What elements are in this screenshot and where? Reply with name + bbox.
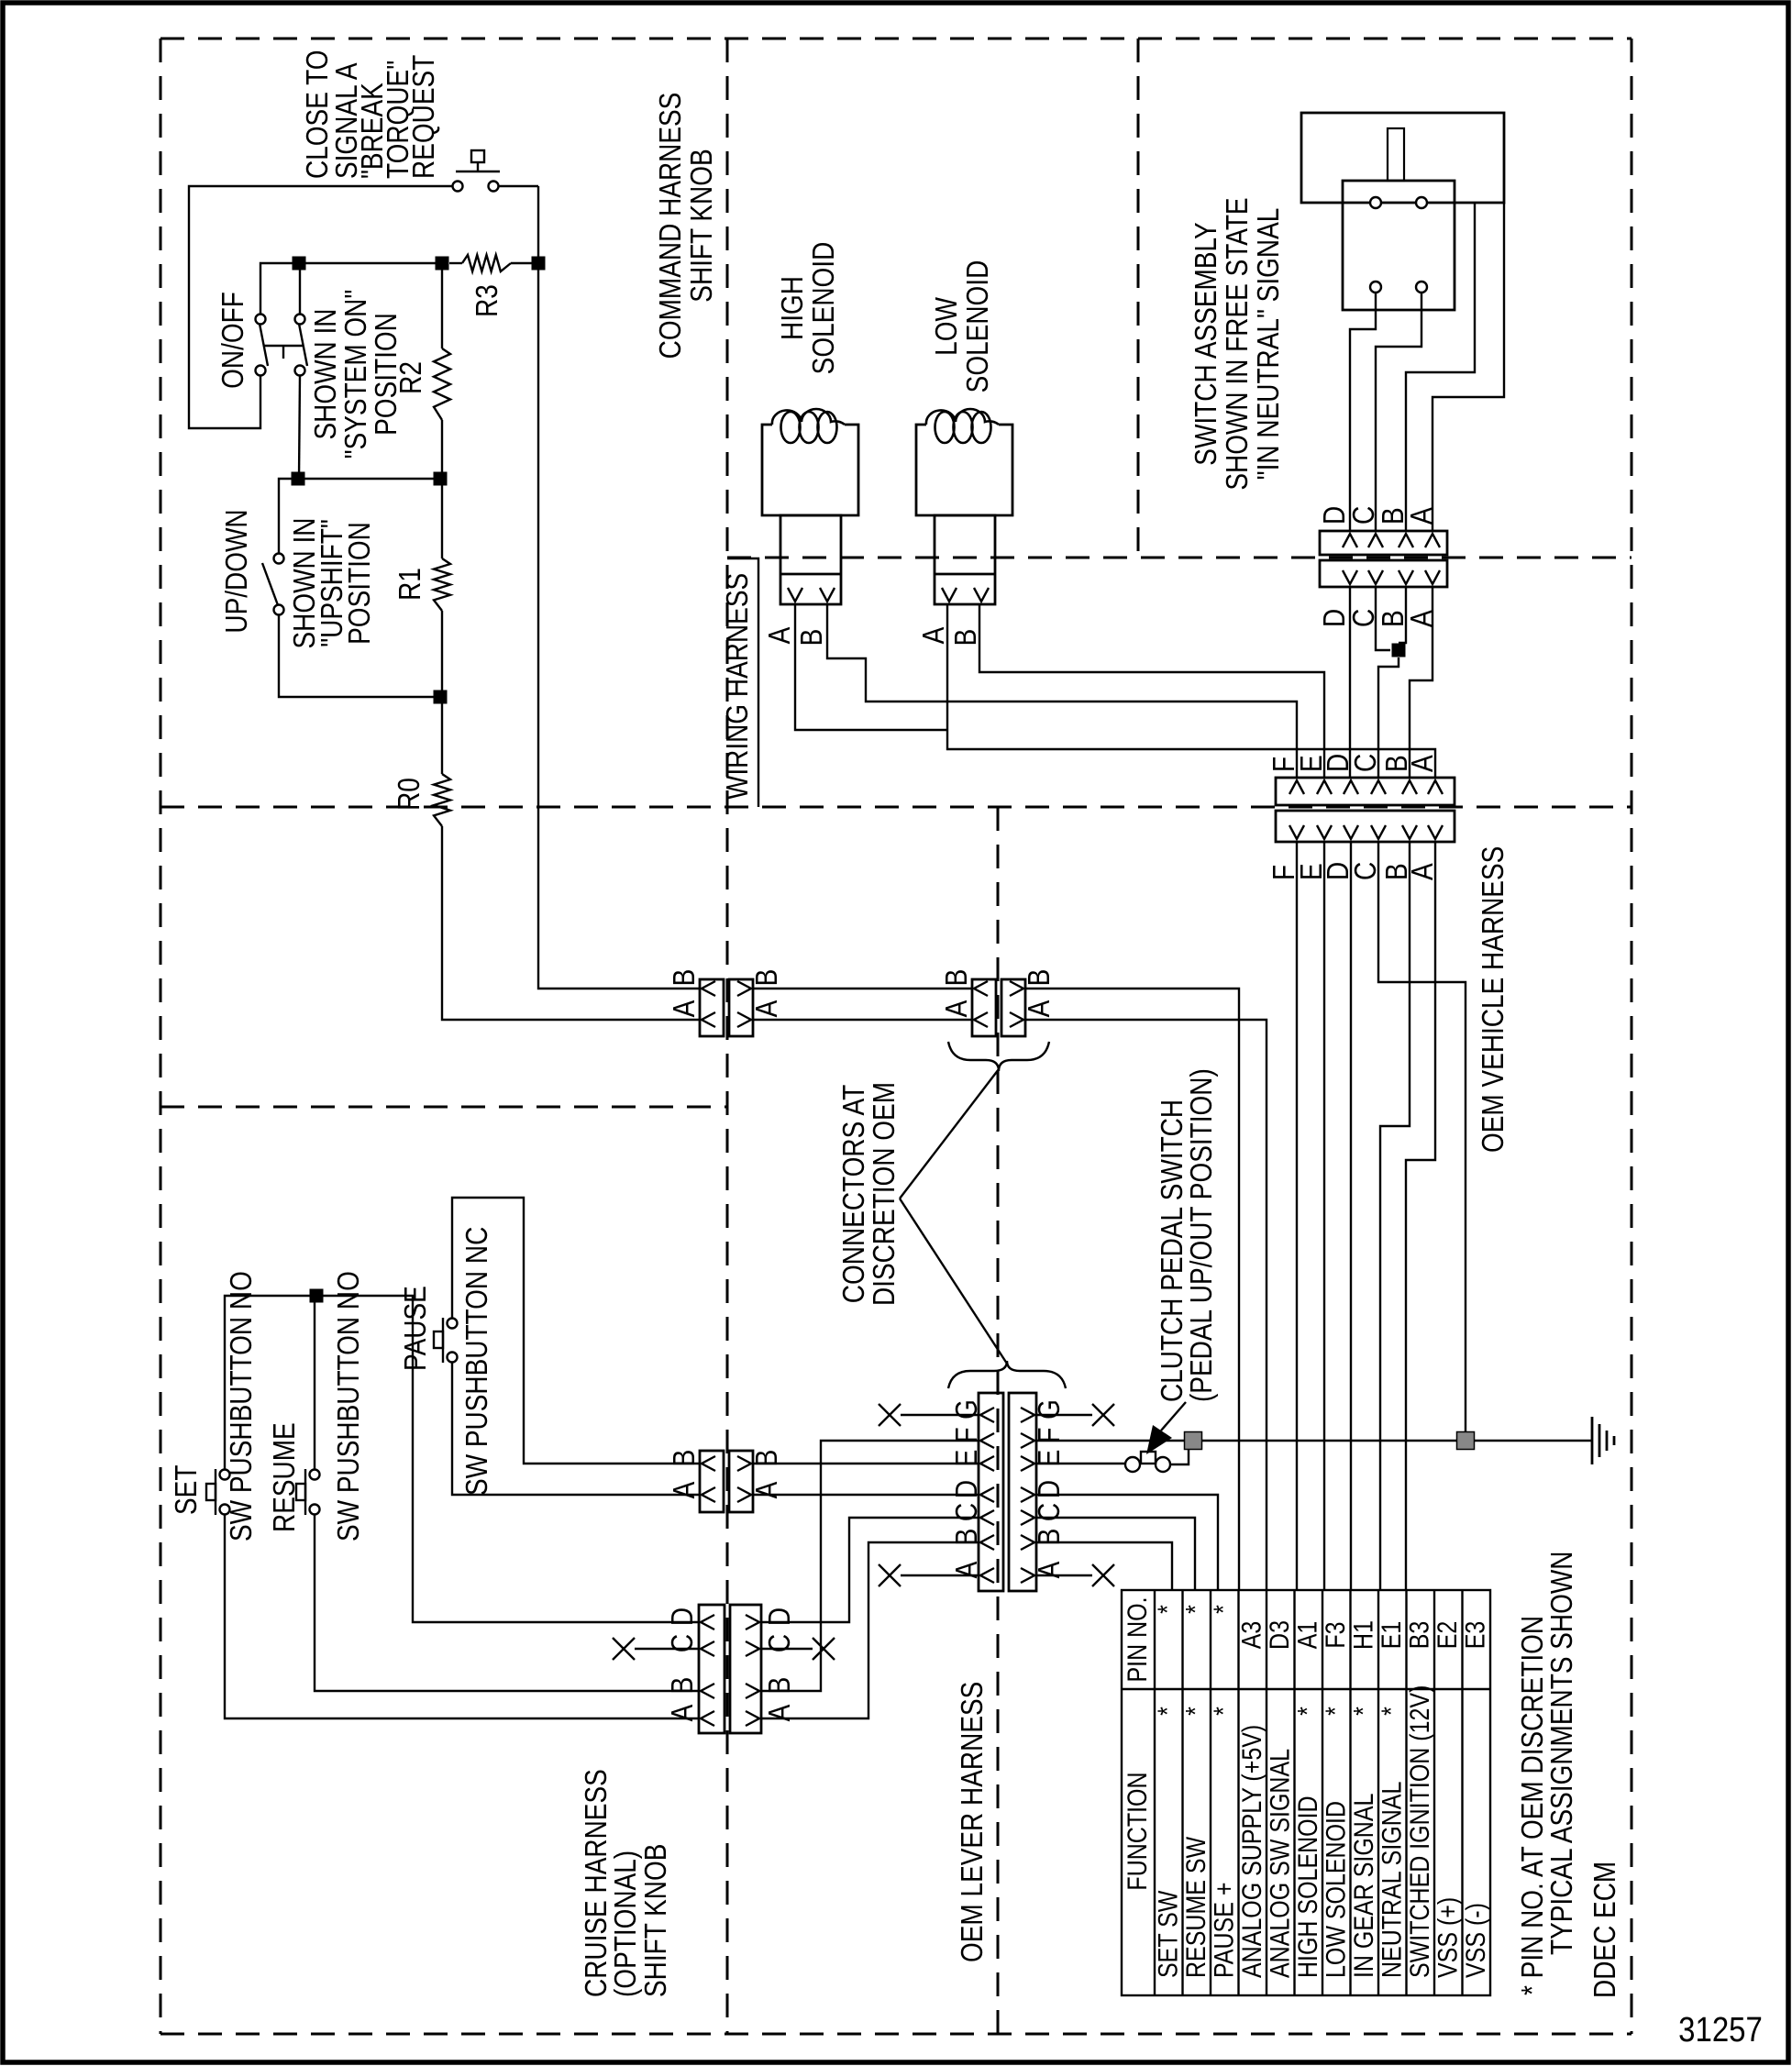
svg-text:ANALOG SW SIGNAL: ANALOG SW SIGNAL <box>1264 1749 1295 1978</box>
svg-text:A: A <box>1405 755 1440 772</box>
svg-text:"IN NEUTRAL" SIGNAL: "IN NEUTRAL" SIGNAL <box>1251 208 1286 481</box>
svg-text:B: B <box>667 969 702 987</box>
svg-text:SET: SET <box>169 1464 204 1515</box>
svg-text:RESUME SW: RESUME SW <box>1180 1837 1211 1978</box>
svg-text:A1: A1 <box>1292 1621 1323 1650</box>
svg-text:LOW SOLENOID: LOW SOLENOID <box>1320 1801 1351 1978</box>
svg-text:RESUME: RESUME <box>267 1422 302 1532</box>
svg-text:A: A <box>1404 507 1439 525</box>
svg-text:ON/OFF: ON/OFF <box>216 292 250 389</box>
svg-text:NEUTRAL SIGNAL: NEUTRAL SIGNAL <box>1376 1782 1407 1978</box>
svg-text:E: E <box>949 1450 984 1467</box>
svg-text:D: D <box>665 1608 700 1626</box>
svg-text:REQUEST: REQUEST <box>406 55 441 179</box>
svg-text:R0: R0 <box>392 778 426 811</box>
svg-text:(PEDAL UP/OUT POSITION): (PEDAL UP/OUT POSITION) <box>1184 1068 1219 1402</box>
svg-text:R1: R1 <box>393 568 427 601</box>
svg-text:ANALOG SUPPLY (+5V): ANALOG SUPPLY (+5V) <box>1236 1725 1267 1978</box>
svg-text:SHIFT KNOB: SHIFT KNOB <box>638 1844 673 1997</box>
svg-text:SW PUSHBUTTON NO: SW PUSHBUTTON NO <box>331 1271 366 1541</box>
svg-text:F: F <box>949 1427 984 1442</box>
svg-text:H1: H1 <box>1348 1620 1379 1650</box>
svg-text:E1: E1 <box>1376 1621 1407 1650</box>
svg-text:C: C <box>949 1503 984 1521</box>
svg-text:SOLENOID: SOLENOID <box>806 242 841 375</box>
svg-text:SHIFT KNOB: SHIFT KNOB <box>684 149 719 302</box>
svg-text:B: B <box>749 969 784 987</box>
svg-text:*: * <box>1376 1707 1407 1716</box>
svg-text:SW PUSHBUTTON NC: SW PUSHBUTTON NC <box>459 1227 494 1496</box>
svg-text:SOLENOID: SOLENOID <box>960 260 995 393</box>
svg-text:D: D <box>949 1480 984 1498</box>
svg-text:*: * <box>1348 1707 1379 1716</box>
svg-text:B: B <box>665 1677 700 1695</box>
svg-text:B: B <box>948 629 983 646</box>
svg-text:F3: F3 <box>1320 1621 1351 1648</box>
svg-text:B3: B3 <box>1404 1621 1435 1650</box>
svg-text:FUNCTION: FUNCTION <box>1122 1772 1153 1890</box>
svg-text:*: * <box>1320 1707 1351 1716</box>
svg-text:A: A <box>762 626 797 644</box>
svg-text:WIRING HARNESS: WIRING HARNESS <box>720 573 755 800</box>
svg-text:B: B <box>1022 969 1056 987</box>
svg-text:PAUSE +: PAUSE + <box>1208 1883 1239 1978</box>
svg-text:PIN NO.: PIN NO. <box>1122 1596 1153 1682</box>
svg-text:UP/DOWN: UP/DOWN <box>219 509 254 633</box>
svg-text:D3: D3 <box>1264 1620 1295 1650</box>
svg-text:SET SW: SET SW <box>1152 1891 1183 1978</box>
svg-text:A3: A3 <box>1236 1621 1267 1650</box>
svg-text:C: C <box>1348 754 1383 772</box>
svg-text:SWITCH ASSEMBLY: SWITCH ASSEMBLY <box>1189 222 1223 465</box>
svg-text:VSS (-): VSS (-) <box>1460 1903 1491 1978</box>
svg-text:SW PUSHBUTTON NO: SW PUSHBUTTON NO <box>224 1271 259 1541</box>
svg-text:POSITION: POSITION <box>342 522 377 645</box>
svg-text:A: A <box>749 1481 784 1498</box>
svg-text:A: A <box>1022 1000 1056 1017</box>
svg-text:A: A <box>667 1000 702 1017</box>
svg-text:R2: R2 <box>393 361 428 394</box>
svg-text:*: * <box>1208 1707 1239 1716</box>
svg-text:R3: R3 <box>470 284 504 317</box>
svg-text:B: B <box>794 629 829 646</box>
svg-text:SWITCHED IGNITION (12V): SWITCHED IGNITION (12V) <box>1404 1685 1435 1978</box>
svg-text:A: A <box>916 626 951 644</box>
svg-text:B: B <box>939 969 974 987</box>
svg-text:A: A <box>749 1000 784 1017</box>
svg-text:A: A <box>667 1481 702 1498</box>
svg-text:VSS (+): VSS (+) <box>1432 1897 1463 1978</box>
svg-text:DISCRETION OEM: DISCRETION OEM <box>867 1082 902 1306</box>
svg-text:LOW: LOW <box>929 296 964 355</box>
svg-text:*: * <box>1152 1605 1183 1614</box>
svg-text:HIGH SOLENOID: HIGH SOLENOID <box>1292 1795 1323 1978</box>
svg-text:TYPICAL ASSIGNMENTS SHOWN: TYPICAL ASSIGNMENTS SHOWN <box>1544 1551 1579 1955</box>
svg-text:31257: 31257 <box>1678 2010 1763 2049</box>
svg-text:OEM VEHICLE HARNESS: OEM VEHICLE HARNESS <box>1476 846 1510 1153</box>
svg-text:A: A <box>665 1704 700 1721</box>
svg-text:OEM LEVER HARNESS: OEM LEVER HARNESS <box>955 1682 990 1962</box>
svg-text:*: * <box>1180 1707 1211 1716</box>
svg-text:*: * <box>1180 1605 1211 1614</box>
svg-text:*: * <box>1292 1707 1323 1716</box>
svg-text:SHOWN IN FREE STATE: SHOWN IN FREE STATE <box>1220 197 1255 490</box>
svg-text:E2: E2 <box>1432 1621 1463 1650</box>
svg-text:*: * <box>1152 1707 1183 1716</box>
svg-text:DDEC ECM: DDEC ECM <box>1587 1862 1622 1998</box>
svg-text:*: * <box>1208 1605 1239 1614</box>
svg-text:HIGH: HIGH <box>775 276 810 340</box>
svg-text:B: B <box>667 1450 702 1467</box>
svg-text:G: G <box>949 1399 984 1420</box>
svg-text:PAUSE: PAUSE <box>398 1286 433 1371</box>
svg-text:G: G <box>1032 1399 1067 1420</box>
svg-text:A: A <box>939 1000 974 1017</box>
svg-text:E3: E3 <box>1460 1621 1491 1650</box>
svg-text:B: B <box>949 1529 984 1546</box>
svg-text:COMMAND HARNESS: COMMAND HARNESS <box>653 93 688 359</box>
svg-text:IN GEAR SIGNAL: IN GEAR SIGNAL <box>1348 1794 1379 1978</box>
